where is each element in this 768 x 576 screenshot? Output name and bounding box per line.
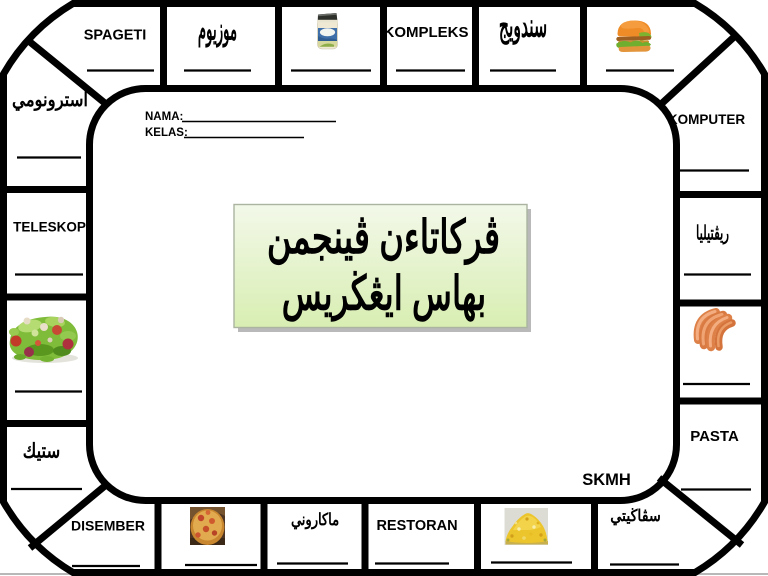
- svg-text:استرونومي: استرونومي: [12, 89, 88, 111]
- svg-text:TELESKOP: TELESKOP: [13, 220, 86, 235]
- svg-text:DISEMBER: DISEMBER: [71, 518, 145, 534]
- svg-text:ستيك: ستيك: [23, 439, 60, 462]
- svg-text:سندويج: سندويج: [499, 9, 547, 46]
- svg-text:SPAGETI: SPAGETI: [84, 28, 147, 44]
- svg-text:ريڤتيليا: ريڤتيليا: [696, 224, 729, 246]
- svg-text:NAMA:: NAMA:: [145, 111, 183, 123]
- svg-text:KOMPLEKS: KOMPLEKS: [383, 24, 468, 41]
- svg-text:ڤركاتاءن ڤينجمن: ڤركاتاءن ڤينجمن: [267, 210, 500, 265]
- svg-text:ماكاروني: ماكاروني: [291, 512, 339, 531]
- svg-text:سڤاڬيتي: سڤاڬيتي: [610, 507, 661, 526]
- svg-text:KELAS:: KELAS:: [145, 127, 188, 139]
- svg-text:RESTORAN: RESTORAN: [376, 518, 457, 534]
- svg-text:KOMPUTER: KOMPUTER: [668, 112, 746, 127]
- svg-text:بهاس ايڠڬريس: بهاس ايڠڬريس: [282, 266, 487, 322]
- svg-text:موزيوم: موزيوم: [198, 12, 237, 48]
- svg-text:SKMH: SKMH: [582, 471, 631, 489]
- svg-text:PASTA: PASTA: [690, 428, 739, 445]
